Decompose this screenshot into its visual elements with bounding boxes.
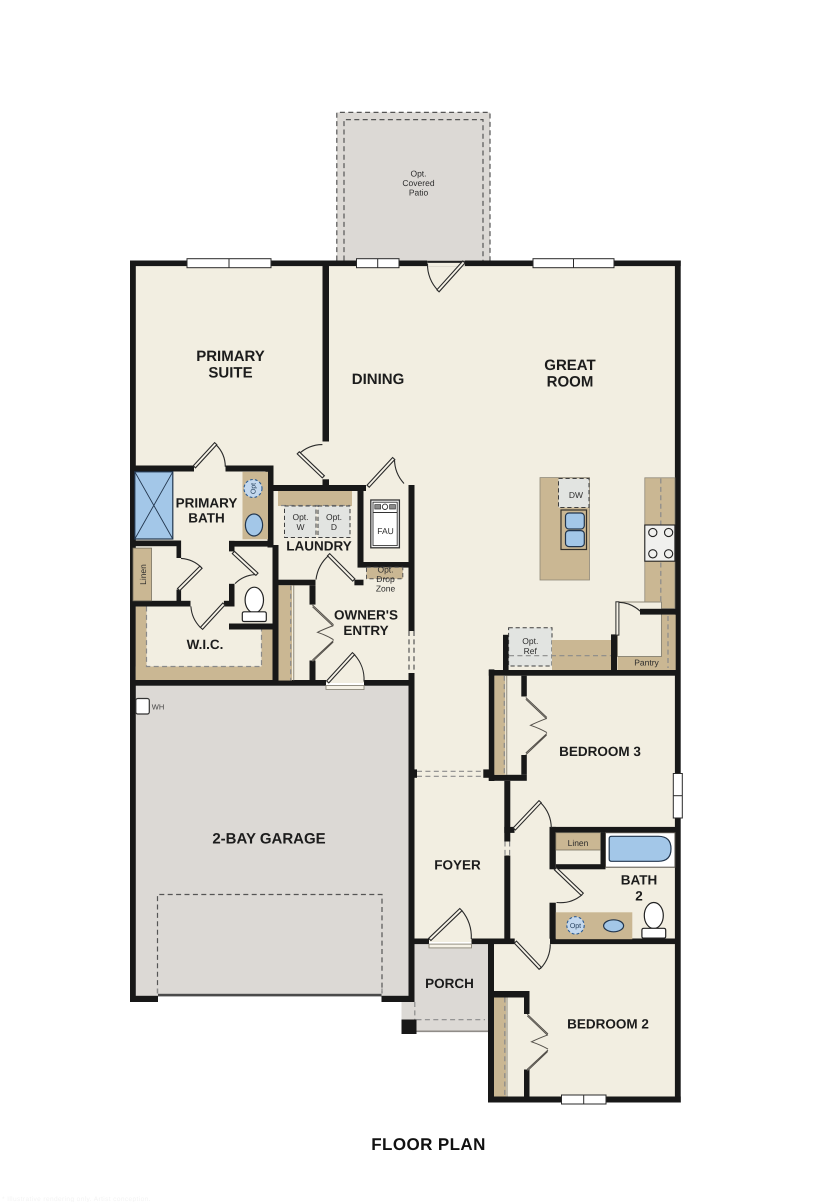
svg-text:ENTRY: ENTRY — [343, 623, 388, 638]
svg-text:Opt: Opt — [570, 923, 581, 930]
svg-text:Pantry: Pantry — [634, 658, 659, 668]
svg-text:Opt.: Opt. — [410, 169, 426, 179]
svg-text:BEDROOM 3: BEDROOM 3 — [559, 744, 641, 759]
svg-text:Patio: Patio — [409, 188, 429, 198]
svg-text:Opt.: Opt. — [522, 636, 538, 646]
svg-text:PORCH: PORCH — [425, 976, 474, 991]
svg-text:Covered: Covered — [402, 178, 434, 188]
svg-text:Opt.: Opt. — [326, 512, 342, 522]
svg-text:Zone: Zone — [376, 584, 396, 594]
svg-text:FAU: FAU — [377, 526, 394, 536]
svg-text:Opt.: Opt. — [377, 565, 393, 575]
svg-text:2-BAY GARAGE: 2-BAY GARAGE — [212, 831, 325, 848]
svg-text:WH: WH — [152, 703, 165, 712]
svg-text:BATH: BATH — [621, 873, 658, 888]
svg-text:DW: DW — [569, 490, 583, 500]
svg-text:DINING: DINING — [352, 371, 405, 388]
svg-text:LAUNDRY: LAUNDRY — [286, 539, 352, 554]
svg-text:PRIMARY: PRIMARY — [196, 348, 265, 365]
svg-text:ROOM: ROOM — [547, 374, 594, 391]
svg-text:OWNER'S: OWNER'S — [334, 608, 398, 623]
svg-text:2: 2 — [635, 889, 643, 904]
svg-text:BATH: BATH — [188, 511, 225, 526]
svg-text:Opt: Opt — [250, 483, 257, 494]
svg-text:SUITE: SUITE — [208, 365, 252, 382]
svg-text:D: D — [331, 522, 337, 532]
svg-text:Drop: Drop — [376, 574, 395, 584]
svg-text:Linen: Linen — [568, 838, 589, 848]
svg-text:Ref: Ref — [524, 646, 538, 656]
svg-text:BEDROOM 2: BEDROOM 2 — [567, 1017, 649, 1032]
svg-text:GREAT: GREAT — [544, 357, 595, 374]
svg-text:PRIMARY: PRIMARY — [176, 496, 238, 511]
svg-text:FLOOR PLAN: FLOOR PLAN — [371, 1135, 486, 1154]
svg-text:W.I.C.: W.I.C. — [187, 637, 224, 652]
svg-text:W: W — [296, 522, 304, 532]
svg-text:* Illustrative rendering only.: * Illustrative rendering only. Artist co… — [2, 1196, 151, 1202]
svg-text:FOYER: FOYER — [434, 858, 481, 873]
svg-text:Linen: Linen — [138, 564, 148, 585]
svg-text:Opt.: Opt. — [292, 512, 308, 522]
